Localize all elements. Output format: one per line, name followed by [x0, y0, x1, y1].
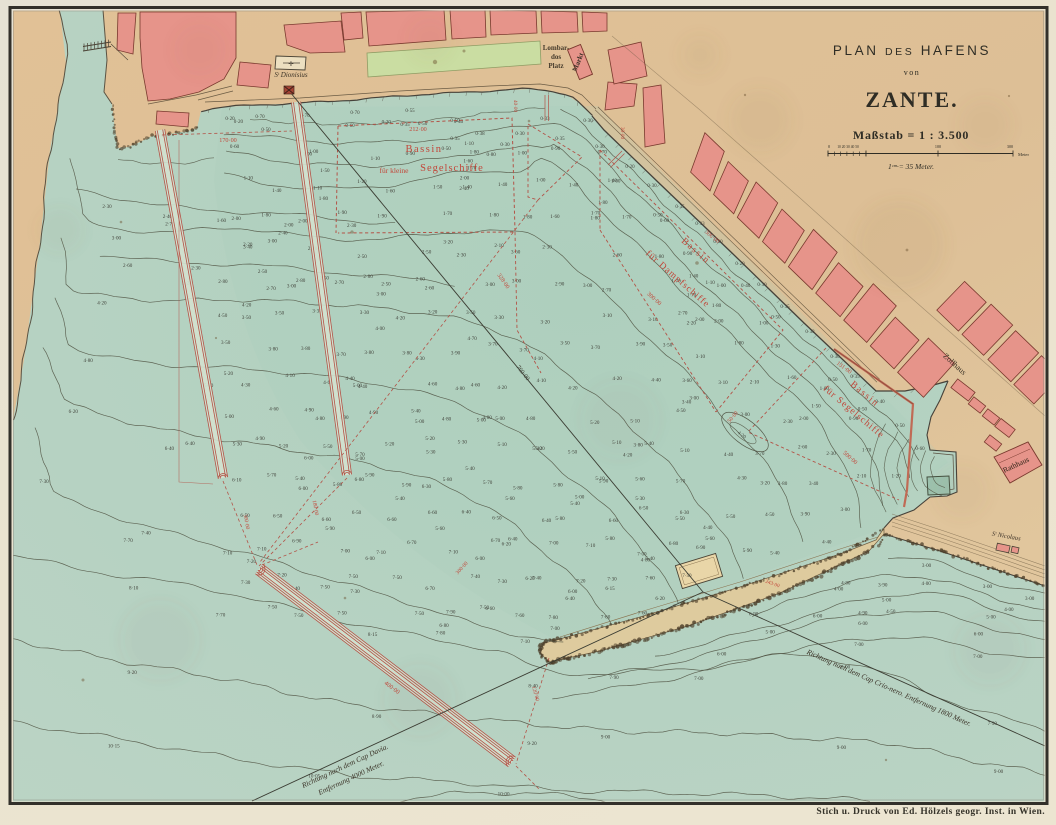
- svg-text:3·80: 3·80: [269, 346, 279, 352]
- svg-text:5·40: 5·40: [645, 556, 655, 562]
- svg-text:0·38: 0·38: [475, 132, 485, 137]
- svg-text:5·50: 5·50: [568, 449, 578, 455]
- svg-text:7·50: 7·50: [480, 605, 490, 611]
- svg-text:2·00: 2·00: [298, 219, 308, 225]
- svg-text:5·70: 5·70: [483, 480, 493, 486]
- svg-text:4·20: 4·20: [242, 303, 252, 309]
- svg-text:4·40: 4·40: [703, 525, 713, 531]
- svg-text:1·40: 1·40: [463, 185, 473, 191]
- svg-text:4·30: 4·30: [737, 476, 747, 482]
- svg-text:4·40: 4·40: [358, 384, 368, 390]
- svg-text:4·80: 4·80: [455, 386, 465, 392]
- svg-text:4·30: 4·30: [241, 383, 251, 389]
- svg-text:7·30: 7·30: [498, 579, 508, 585]
- svg-text:0·70: 0·70: [255, 115, 265, 120]
- svg-text:9·00: 9·00: [601, 734, 611, 740]
- svg-text:3·90: 3·90: [451, 350, 461, 356]
- svg-text:0·60: 0·60: [230, 144, 240, 150]
- svg-text:4·50: 4·50: [218, 313, 228, 319]
- svg-text:5·20: 5·20: [385, 442, 395, 448]
- svg-text:7·30: 7·30: [241, 580, 251, 586]
- svg-text:5·80: 5·80: [553, 482, 563, 488]
- svg-text:3·00: 3·00: [1025, 596, 1035, 602]
- svg-text:100: 100: [935, 144, 941, 149]
- svg-text:7·00: 7·00: [550, 626, 560, 632]
- svg-text:4·70: 4·70: [468, 336, 478, 342]
- svg-text:5·30: 5·30: [458, 439, 468, 445]
- svg-text:4·40: 4·40: [651, 378, 661, 384]
- svg-text:0·35: 0·35: [450, 137, 460, 142]
- svg-text:7·00: 7·00: [341, 548, 351, 554]
- svg-text:5·50: 5·50: [726, 514, 736, 520]
- svg-text:1·50: 1·50: [433, 185, 443, 191]
- svg-text:7·50: 7·50: [337, 610, 347, 616]
- svg-text:0·33: 0·33: [805, 330, 815, 335]
- svg-text:2·10: 2·10: [494, 243, 504, 249]
- svg-text:0·50: 0·50: [895, 424, 905, 429]
- svg-text:5·40: 5·40: [770, 551, 780, 557]
- svg-text:5·00: 5·00: [415, 419, 425, 425]
- svg-text:0·50: 0·50: [450, 119, 460, 124]
- svg-text:5·00: 5·00: [575, 495, 585, 501]
- svg-text:5·90: 5·90: [325, 526, 335, 532]
- svg-text:5·30: 5·30: [233, 442, 243, 448]
- svg-text:1·70: 1·70: [591, 210, 601, 216]
- svg-text:Meter: Meter: [1018, 152, 1029, 157]
- svg-text:170·00: 170·00: [219, 137, 237, 144]
- svg-text:5·20: 5·20: [279, 443, 289, 449]
- svg-text:6·80: 6·80: [355, 477, 365, 483]
- svg-text:1·00: 1·00: [759, 321, 769, 327]
- svg-text:4·90: 4·90: [255, 436, 265, 442]
- svg-text:0·20: 0·20: [625, 165, 635, 170]
- svg-text:6·00: 6·00: [717, 651, 727, 657]
- svg-text:1·70: 1·70: [622, 215, 632, 221]
- svg-text:1·50: 1·50: [811, 403, 821, 409]
- svg-text:6·00: 6·00: [568, 589, 578, 595]
- svg-text:6·70: 6·70: [407, 540, 417, 546]
- svg-text:2·60: 2·60: [798, 445, 808, 451]
- svg-text:7·40: 7·40: [141, 530, 151, 536]
- svg-text:PLAN DES HAFENS: PLAN DES HAFENS: [833, 43, 991, 58]
- svg-text:1·50: 1·50: [320, 168, 330, 174]
- svg-text:6·70: 6·70: [425, 586, 435, 592]
- svg-text:1·20: 1·20: [892, 474, 902, 480]
- svg-text:30·00: 30·00: [619, 127, 625, 140]
- svg-text:9·00: 9·00: [837, 745, 847, 751]
- svg-text:2·00: 2·00: [232, 216, 242, 222]
- svg-text:3·50: 3·50: [242, 315, 252, 321]
- svg-text:6·40: 6·40: [185, 441, 195, 447]
- svg-text:0: 0: [828, 144, 830, 149]
- svg-text:5·30: 5·30: [635, 496, 645, 502]
- svg-text:6·00: 6·00: [813, 613, 823, 619]
- svg-text:3·30: 3·30: [360, 310, 370, 316]
- svg-text:5·90: 5·90: [402, 483, 412, 489]
- svg-text:0·20: 0·20: [382, 120, 392, 126]
- svg-text:7·30: 7·30: [607, 577, 617, 583]
- svg-text:10 20 30 40 50: 10 20 30 40 50: [837, 145, 859, 149]
- svg-text:6·70: 6·70: [491, 538, 501, 544]
- svg-text:5·70: 5·70: [676, 478, 686, 484]
- svg-text:9·20: 9·20: [527, 741, 537, 747]
- svg-text:4·10: 4·10: [537, 378, 547, 384]
- svg-text:4·40: 4·40: [724, 452, 734, 458]
- svg-text:2·60: 2·60: [123, 263, 133, 269]
- svg-text:0·20: 0·20: [735, 262, 745, 267]
- svg-text:6·40: 6·40: [565, 596, 575, 602]
- svg-text:0·30: 0·30: [830, 355, 840, 360]
- svg-text:5·80: 5·80: [513, 486, 523, 492]
- svg-text:4·50: 4·50: [676, 408, 686, 414]
- svg-text:5·20: 5·20: [224, 371, 234, 377]
- svg-text:5·00: 5·00: [766, 630, 776, 636]
- svg-text:6·00: 6·00: [299, 486, 309, 492]
- svg-text:7·50: 7·50: [320, 584, 330, 590]
- svg-text:6·60: 6·60: [428, 510, 438, 516]
- svg-text:6·15: 6·15: [605, 586, 615, 592]
- svg-text:3·00: 3·00: [486, 282, 496, 288]
- svg-text:4·00: 4·00: [922, 581, 932, 587]
- svg-text:1·60: 1·60: [550, 214, 560, 220]
- svg-text:3·00: 3·00: [512, 279, 522, 285]
- svg-text:1·80: 1·80: [319, 196, 329, 202]
- svg-text:2·00: 2·00: [799, 416, 809, 422]
- svg-text:2·60: 2·60: [416, 276, 426, 282]
- svg-text:1·70: 1·70: [443, 211, 453, 217]
- svg-text:6·40: 6·40: [542, 518, 552, 524]
- svg-text:0·30: 0·30: [647, 184, 657, 189]
- svg-text:6·90: 6·90: [696, 545, 706, 551]
- svg-text:7·50: 7·50: [682, 573, 692, 579]
- svg-text:1·80: 1·80: [712, 303, 722, 309]
- svg-text:6·00: 6·00: [304, 456, 314, 462]
- svg-text:2·00: 2·00: [714, 319, 724, 325]
- svg-text:dos: dos: [551, 53, 561, 61]
- svg-text:2·50: 2·50: [381, 282, 391, 288]
- svg-text:5·30: 5·30: [426, 450, 436, 456]
- svg-text:2·10: 2·10: [857, 473, 867, 479]
- svg-text:6·80: 6·80: [669, 541, 679, 547]
- svg-text:0·30: 0·30: [757, 283, 767, 288]
- svg-text:Maßstab = 1 : 3.500: Maßstab = 1 : 3.500: [853, 128, 969, 142]
- svg-text:3·80: 3·80: [778, 481, 788, 487]
- svg-text:4·80: 4·80: [442, 417, 452, 423]
- svg-text:7·20: 7·20: [247, 559, 257, 565]
- svg-text:8·15: 8·15: [368, 632, 378, 638]
- svg-text:3·00: 3·00: [922, 563, 932, 569]
- svg-text:0·30: 0·30: [515, 132, 525, 137]
- svg-text:1·90: 1·90: [377, 214, 387, 220]
- svg-text:2·50: 2·50: [258, 269, 268, 275]
- svg-text:7·00: 7·00: [854, 642, 864, 648]
- svg-text:1·30: 1·30: [771, 344, 781, 350]
- svg-text:2·50: 2·50: [358, 254, 368, 260]
- svg-text:7·60: 7·60: [646, 576, 656, 582]
- svg-text:5·00: 5·00: [495, 416, 505, 422]
- svg-text:0·20: 0·20: [234, 119, 244, 125]
- svg-text:5·60: 5·60: [435, 526, 445, 532]
- svg-text:3·20: 3·20: [443, 240, 453, 246]
- svg-text:2·70: 2·70: [266, 286, 276, 292]
- svg-text:5·50: 5·50: [323, 444, 333, 450]
- svg-text:2·70: 2·70: [602, 288, 612, 294]
- svg-text:3·00: 3·00: [287, 284, 297, 290]
- svg-text:6·10: 6·10: [232, 478, 242, 484]
- svg-text:3·90: 3·90: [801, 512, 811, 518]
- svg-text:1·10: 1·10: [244, 176, 254, 182]
- svg-text:5·10: 5·10: [680, 448, 690, 454]
- svg-text:2·30: 2·30: [542, 245, 552, 251]
- svg-text:7·70: 7·70: [216, 613, 226, 619]
- svg-text:5·40: 5·40: [465, 466, 475, 472]
- svg-text:2·80: 2·80: [296, 278, 306, 284]
- svg-text:6·20: 6·20: [69, 409, 79, 415]
- svg-text:4·00: 4·00: [1004, 607, 1014, 613]
- svg-text:1·70: 1·70: [862, 448, 872, 454]
- svg-text:Lombar-: Lombar-: [543, 44, 570, 52]
- svg-text:3·60: 3·60: [511, 249, 521, 255]
- svg-text:9·00: 9·00: [994, 769, 1004, 775]
- svg-text:3·10: 3·10: [718, 380, 728, 386]
- svg-text:3·80: 3·80: [402, 350, 412, 356]
- svg-text:0·70: 0·70: [350, 111, 360, 116]
- svg-text:0·30: 0·30: [583, 119, 593, 124]
- svg-text:6·20: 6·20: [655, 596, 665, 602]
- svg-text:1·40: 1·40: [272, 188, 282, 194]
- svg-text:3·30: 3·30: [494, 315, 504, 321]
- svg-text:0·90: 0·90: [551, 146, 561, 152]
- svg-text:0·20: 0·20: [225, 117, 235, 122]
- svg-text:Segelschiffe: Segelschiffe: [420, 163, 484, 174]
- svg-text:3·70: 3·70: [337, 352, 347, 358]
- svg-text:212·00: 212·00: [409, 126, 427, 133]
- svg-text:4·20: 4·20: [568, 386, 578, 392]
- svg-text:1·00: 1·00: [717, 283, 727, 289]
- svg-text:1·80: 1·80: [489, 212, 499, 218]
- svg-text:5·50: 5·50: [675, 516, 685, 522]
- svg-text:0·50: 0·50: [828, 377, 838, 383]
- svg-text:5·40: 5·40: [395, 496, 405, 502]
- svg-text:1·10: 1·10: [313, 185, 323, 191]
- svg-text:3·00: 3·00: [377, 291, 387, 297]
- svg-text:1ᶜᵐ·= 35 Meter.: 1ᶜᵐ·= 35 Meter.: [888, 162, 934, 171]
- svg-text:5·80: 5·80: [443, 477, 453, 483]
- svg-text:7·50: 7·50: [268, 605, 278, 611]
- svg-text:von: von: [904, 68, 921, 77]
- svg-text:2·30: 2·30: [191, 265, 201, 271]
- svg-text:4·40: 4·40: [822, 540, 832, 546]
- svg-text:1·40: 1·40: [689, 273, 699, 279]
- svg-text:4·80: 4·80: [84, 358, 94, 364]
- svg-text:2·20: 2·20: [243, 242, 253, 248]
- svg-text:2·40: 2·40: [278, 231, 288, 237]
- svg-text:2·60: 2·60: [425, 286, 435, 292]
- svg-text:4·40: 4·40: [345, 376, 355, 382]
- svg-text:1·40: 1·40: [498, 182, 508, 188]
- svg-text:3·00: 3·00: [841, 507, 851, 513]
- svg-text:6·00: 6·00: [365, 556, 375, 562]
- svg-text:300: 300: [1007, 144, 1013, 149]
- svg-text:für kleine: für kleine: [380, 166, 410, 175]
- svg-text:2·30: 2·30: [783, 419, 793, 425]
- svg-text:1·10: 1·10: [464, 141, 474, 147]
- svg-text:2·10: 2·10: [750, 379, 760, 385]
- svg-text:5·90: 5·90: [599, 479, 609, 485]
- svg-text:5·80: 5·80: [605, 536, 615, 542]
- svg-text:4·00: 4·00: [375, 326, 385, 332]
- svg-text:5·60: 5·60: [635, 476, 645, 482]
- svg-text:4·90: 4·90: [305, 407, 315, 413]
- svg-text:2·30: 2·30: [102, 204, 112, 210]
- svg-text:7·60: 7·60: [601, 615, 611, 621]
- svg-text:3·20: 3·20: [541, 320, 551, 326]
- svg-text:4·10: 4·10: [285, 373, 295, 379]
- svg-text:6·60: 6·60: [609, 518, 619, 524]
- svg-text:40·00: 40·00: [512, 100, 518, 113]
- svg-text:2·50: 2·50: [422, 250, 432, 256]
- svg-text:3·50: 3·50: [663, 343, 673, 349]
- svg-text:0·55: 0·55: [405, 109, 415, 114]
- svg-text:0·70: 0·70: [598, 150, 608, 156]
- svg-text:7·50: 7·50: [294, 613, 304, 619]
- svg-text:5·40: 5·40: [570, 501, 580, 507]
- svg-text:7·90: 7·90: [446, 609, 456, 615]
- svg-text:7·30: 7·30: [350, 589, 360, 595]
- svg-text:5·00: 5·00: [225, 414, 235, 420]
- svg-text:5·70: 5·70: [267, 472, 277, 478]
- svg-text:5·90: 5·90: [743, 548, 753, 554]
- svg-text:7·40: 7·40: [471, 574, 481, 580]
- svg-text:7·00: 7·00: [637, 552, 647, 558]
- svg-text:6·00: 6·00: [475, 556, 485, 562]
- svg-text:5·60: 5·60: [505, 496, 515, 502]
- svg-text:2·30: 2·30: [826, 451, 836, 457]
- svg-text:6·60: 6·60: [322, 517, 332, 523]
- svg-text:2·90: 2·90: [555, 282, 565, 288]
- svg-text:6·50: 6·50: [352, 510, 362, 516]
- svg-text:5·10: 5·10: [498, 442, 508, 448]
- svg-text:3·40: 3·40: [809, 481, 819, 487]
- svg-text:7·60: 7·60: [515, 613, 525, 619]
- svg-text:0·33: 0·33: [695, 222, 705, 227]
- svg-text:0·60: 0·60: [345, 124, 355, 129]
- svg-text:0·50: 0·50: [771, 315, 781, 321]
- svg-text:7·90: 7·90: [609, 675, 619, 681]
- svg-text:3·20: 3·20: [760, 481, 770, 487]
- svg-text:6·50: 6·50: [639, 505, 649, 511]
- svg-text:7·10: 7·10: [521, 639, 531, 645]
- svg-text:5·40: 5·40: [532, 446, 542, 452]
- svg-text:1·80: 1·80: [734, 340, 744, 346]
- svg-text:6·80: 6·80: [439, 623, 449, 629]
- svg-text:8·90: 8·90: [372, 714, 382, 720]
- svg-text:3·50: 3·50: [560, 341, 570, 347]
- svg-text:7·50: 7·50: [415, 611, 425, 617]
- svg-text:3·10: 3·10: [603, 313, 613, 319]
- svg-text:10·15: 10·15: [108, 743, 120, 749]
- svg-text:4·20: 4·20: [396, 316, 406, 322]
- svg-text:3·90: 3·90: [636, 342, 646, 348]
- svg-text:5·70: 5·70: [355, 452, 365, 458]
- svg-text:6·30: 6·30: [422, 484, 432, 490]
- svg-text:6·50: 6·50: [492, 515, 502, 521]
- svg-text:✛: ✛: [288, 60, 294, 68]
- svg-text:4·60: 4·60: [471, 383, 481, 389]
- svg-text:6·50: 6·50: [273, 514, 283, 520]
- svg-text:6·90: 6·90: [292, 539, 302, 545]
- svg-text:6·30: 6·30: [680, 510, 690, 516]
- svg-text:2·60: 2·60: [613, 253, 623, 259]
- svg-text:0·80: 0·80: [487, 152, 497, 158]
- svg-text:0·35: 0·35: [675, 205, 685, 210]
- svg-text:7·30: 7·30: [39, 479, 49, 485]
- svg-text:4·90: 4·90: [369, 410, 379, 416]
- svg-text:0·40: 0·40: [741, 283, 751, 289]
- svg-text:3·00: 3·00: [268, 238, 278, 244]
- svg-text:4·00: 4·00: [834, 587, 844, 593]
- svg-text:0·35: 0·35: [780, 305, 790, 310]
- svg-text:1·40: 1·40: [569, 183, 579, 189]
- svg-text:4·50: 4·50: [886, 609, 896, 615]
- svg-text:3·00: 3·00: [741, 412, 751, 418]
- svg-text:2·00: 2·00: [284, 222, 294, 228]
- svg-text:1·60: 1·60: [787, 375, 797, 381]
- svg-text:2·20: 2·20: [687, 320, 697, 326]
- svg-text:3·70: 3·70: [520, 347, 530, 353]
- svg-text:2·80: 2·80: [363, 274, 373, 280]
- svg-text:5·00: 5·00: [882, 597, 892, 603]
- svg-text:1·80: 1·80: [470, 150, 480, 156]
- svg-text:7·70: 7·70: [124, 538, 134, 544]
- svg-text:2·30: 2·30: [457, 253, 467, 259]
- svg-text:5·20: 5·20: [425, 436, 435, 442]
- svg-text:3·00: 3·00: [983, 584, 993, 590]
- svg-text:2·70: 2·70: [678, 311, 688, 317]
- svg-text:7·10: 7·10: [449, 549, 459, 555]
- svg-text:7·10: 7·10: [586, 543, 596, 549]
- svg-text:7·80: 7·80: [549, 615, 559, 621]
- svg-text:Stich u. Druck von Ed. Hölzels: Stich u. Druck von Ed. Hölzels geogr. In…: [816, 807, 1045, 817]
- svg-text:3·00: 3·00: [583, 283, 593, 289]
- svg-text:6·40: 6·40: [462, 510, 472, 516]
- svg-text:2·30: 2·30: [347, 223, 357, 229]
- svg-text:8·10: 8·10: [129, 586, 139, 592]
- svg-text:1·80: 1·80: [523, 214, 533, 220]
- svg-text:4·60: 4·60: [269, 407, 279, 413]
- svg-text:2·70: 2·70: [335, 280, 345, 286]
- svg-text:7·10: 7·10: [223, 551, 233, 557]
- svg-text:3·20: 3·20: [428, 310, 438, 316]
- svg-text:5·90: 5·90: [365, 472, 375, 478]
- svg-text:0·30: 0·30: [595, 145, 605, 150]
- svg-text:1·00: 1·00: [536, 178, 546, 184]
- svg-text:7·00: 7·00: [549, 540, 559, 546]
- svg-text:1·00: 1·00: [518, 151, 528, 157]
- svg-text:1·00: 1·00: [611, 179, 621, 185]
- svg-text:Platz: Platz: [548, 62, 563, 70]
- svg-text:3·80: 3·80: [364, 350, 374, 356]
- svg-text:3·10: 3·10: [696, 354, 706, 360]
- svg-text:7·40: 7·40: [532, 576, 542, 582]
- svg-text:0·60: 0·60: [660, 218, 670, 224]
- svg-text:1·60: 1·60: [217, 218, 227, 224]
- svg-text:1·60: 1·60: [386, 188, 396, 194]
- svg-text:Sᵗ Dionisius: Sᵗ Dionisius: [274, 71, 308, 79]
- svg-text:3·60: 3·60: [682, 378, 692, 384]
- svg-text:6·00: 6·00: [858, 621, 868, 627]
- svg-text:4·20: 4·20: [497, 385, 507, 391]
